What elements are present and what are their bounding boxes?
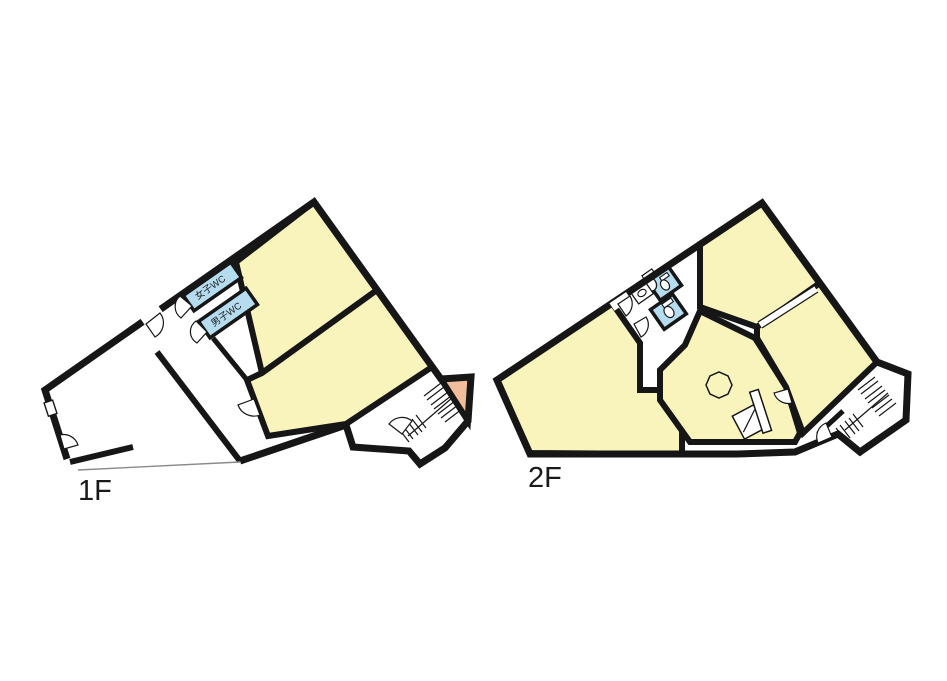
floor-plan-canvas: 女子WC 男子WC 1F — [0, 0, 947, 681]
floor-plan-2f: 2F — [497, 203, 908, 494]
floor-plan-1f: 女子WC 男子WC 1F — [44, 202, 471, 507]
floor-label-2f: 2F — [528, 462, 562, 494]
floor-plan-drawing: 女子WC 男子WC 1F — [0, 0, 947, 681]
floor-label-1f: 1F — [78, 475, 112, 507]
